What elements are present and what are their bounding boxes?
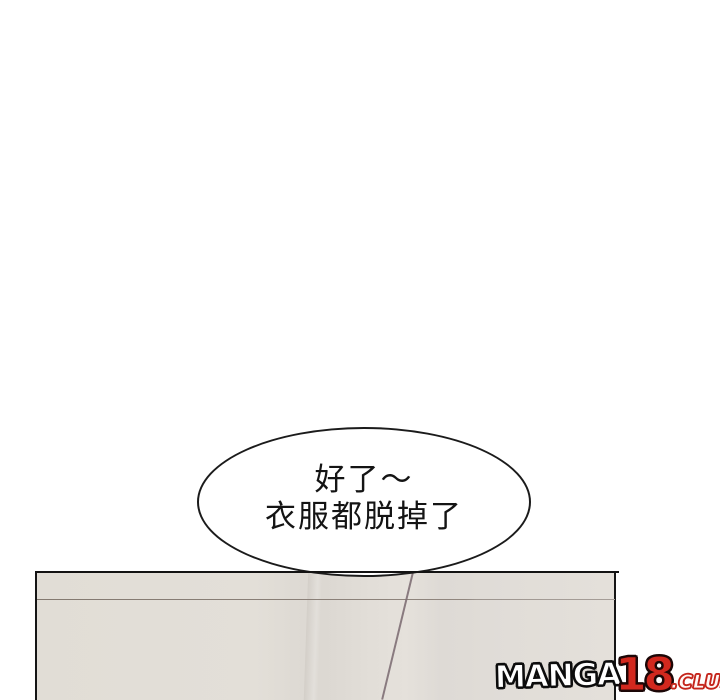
speech-bubble-line-2: 衣服都脱掉了	[265, 499, 463, 536]
panel-top-border	[35, 571, 619, 573]
site-watermark: MANGA 18 .CLUB	[495, 649, 720, 695]
watermark-manga-text: MANGA	[495, 659, 621, 693]
watermark-club-text: .CLUB	[671, 673, 720, 692]
speech-bubble-line-1: 好了～	[315, 462, 414, 499]
wall-seam-line	[37, 599, 615, 601]
speech-bubble: 好了～ 衣服都脱掉了	[197, 427, 531, 577]
watermark-18-text: 18	[615, 652, 672, 697]
comic-page: 好了～ 衣服都脱掉了 MANGA 18 .CLUB	[0, 0, 720, 700]
